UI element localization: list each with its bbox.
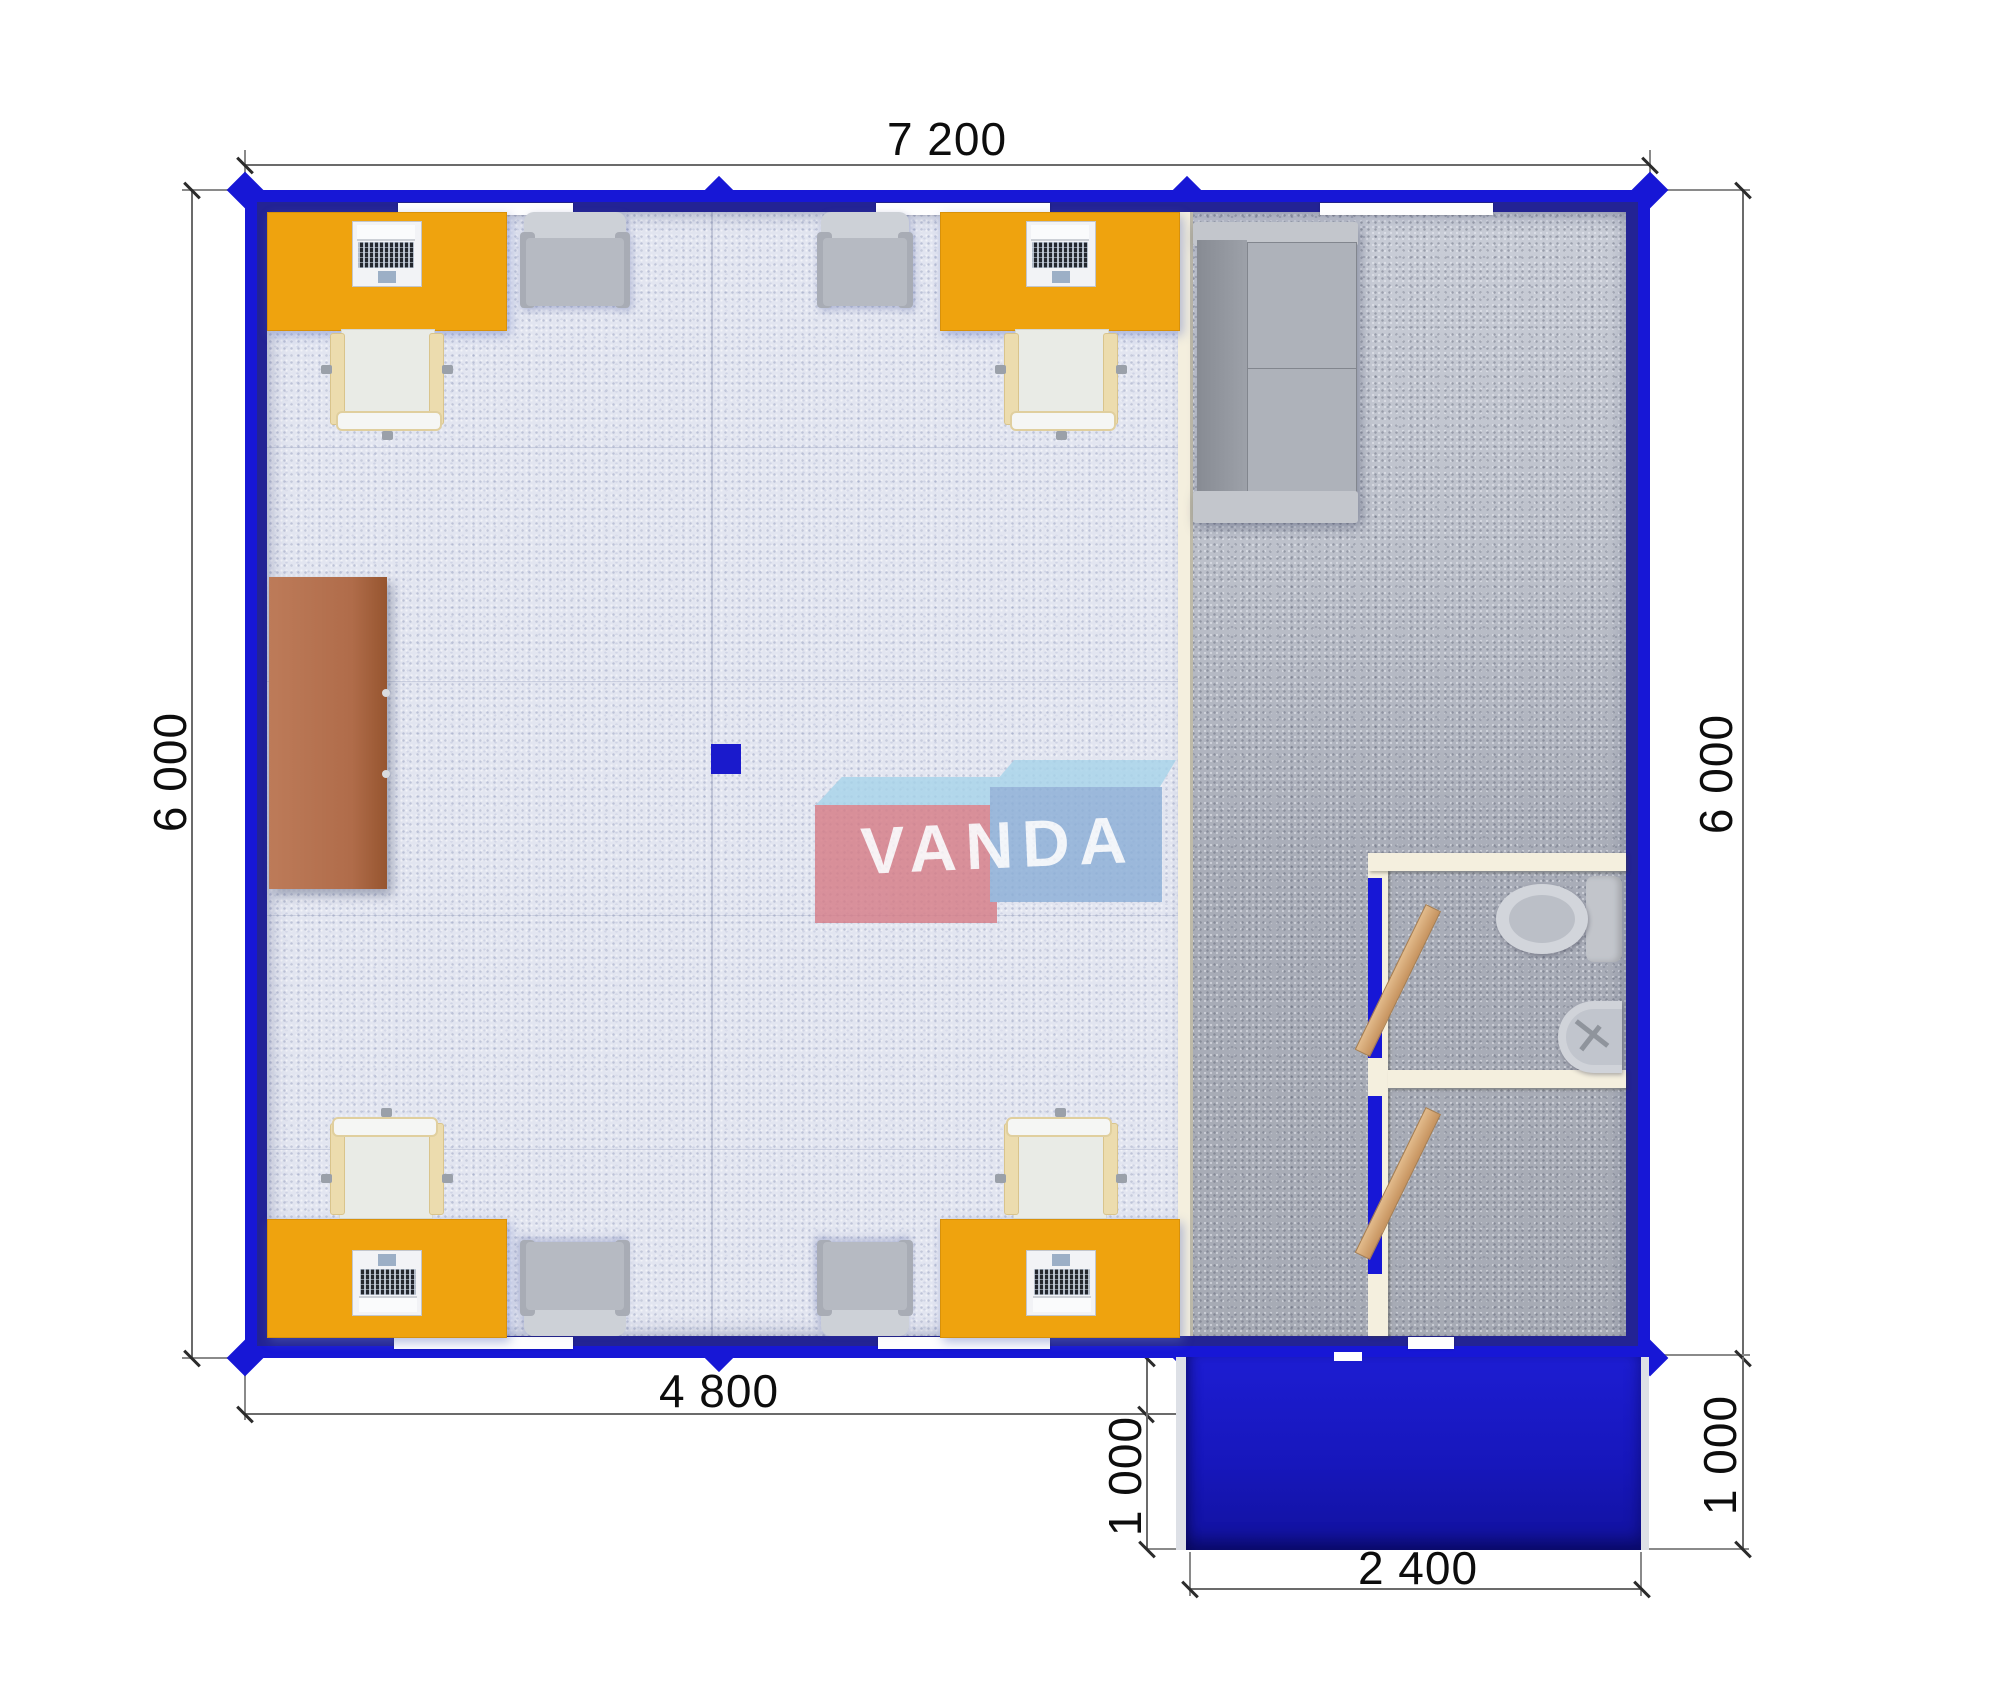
laptop-3 bbox=[352, 1250, 422, 1316]
laptop-lid bbox=[357, 225, 415, 241]
entrance-door-handle bbox=[1334, 1352, 1362, 1361]
chair-caster bbox=[382, 431, 393, 440]
sofa bbox=[1193, 222, 1358, 523]
laptop-keyboard bbox=[360, 1269, 416, 1295]
chair-caster bbox=[321, 365, 332, 374]
office-chair-1 bbox=[330, 329, 444, 429]
chair-backrest bbox=[1010, 411, 1116, 431]
laptop-keyboard bbox=[1032, 242, 1088, 268]
laptop-trackpad bbox=[1052, 271, 1070, 283]
dim-label-office-width: 4 800 bbox=[619, 1366, 819, 1416]
armchair-seat bbox=[526, 1242, 624, 1310]
chair-caster bbox=[381, 1108, 392, 1117]
laptop-lid bbox=[359, 1296, 417, 1312]
laptop-4 bbox=[1026, 1250, 1096, 1316]
dim-line-office-width bbox=[245, 1413, 1190, 1415]
chair-seat bbox=[341, 329, 435, 419]
center-floor-marker bbox=[711, 744, 741, 774]
office-chair-3 bbox=[330, 1119, 444, 1219]
laptop-trackpad bbox=[1052, 1254, 1070, 1266]
sofa-cushion bbox=[1247, 368, 1357, 495]
chair-caster bbox=[442, 1174, 453, 1183]
chair-caster bbox=[995, 365, 1006, 374]
dim-line-porch-width bbox=[1190, 1588, 1642, 1590]
bathroom-wall-top bbox=[1368, 853, 1626, 871]
storage-cabinet bbox=[269, 577, 387, 889]
dim-line-porch-depth-left bbox=[1146, 1357, 1148, 1549]
chair-seat bbox=[339, 1129, 433, 1219]
chair-backrest bbox=[332, 1117, 438, 1137]
extension-line bbox=[1649, 1548, 1749, 1550]
floor-seam bbox=[267, 681, 1178, 682]
entrance-porch bbox=[1186, 1357, 1641, 1550]
window-bottom-1 bbox=[394, 1337, 573, 1349]
logo-box-top-red bbox=[815, 777, 1007, 806]
chair-caster bbox=[1055, 1108, 1066, 1117]
floor-seam bbox=[711, 212, 713, 1336]
laptop-keyboard bbox=[1034, 1269, 1090, 1295]
armchair-seat bbox=[823, 238, 907, 306]
chair-caster bbox=[442, 365, 453, 374]
chair-backrest bbox=[1006, 1117, 1112, 1137]
porch-edge-left bbox=[1176, 1357, 1186, 1550]
chair-caster bbox=[995, 1174, 1006, 1183]
armchair-seat bbox=[526, 238, 624, 306]
armchair-seat bbox=[823, 1242, 907, 1310]
office-chair-2 bbox=[1004, 329, 1118, 429]
laptop-lid bbox=[1031, 225, 1089, 241]
laptop-1 bbox=[352, 221, 422, 287]
dim-label-left-height: 6 000 bbox=[145, 672, 195, 872]
dim-line-right-height bbox=[1742, 190, 1744, 1358]
vanda-logo: VANDA bbox=[810, 755, 1190, 935]
visitor-armchair-3 bbox=[520, 1238, 630, 1336]
logo-box-top-blue bbox=[990, 760, 1176, 788]
dim-line-top-width bbox=[245, 164, 1650, 166]
toilet-bowl bbox=[1496, 884, 1588, 954]
toilet bbox=[1496, 876, 1622, 962]
chair-caster bbox=[321, 1174, 332, 1183]
dim-line-porch-depth-right bbox=[1742, 1357, 1744, 1549]
dim-label-porch-depth-right: 1 000 bbox=[1695, 1355, 1745, 1555]
sofa-cushion bbox=[1247, 242, 1357, 369]
dim-label-top-width: 7 200 bbox=[847, 114, 1047, 164]
visitor-armchair-4 bbox=[817, 1238, 913, 1336]
visitor-armchair-2 bbox=[817, 212, 913, 310]
logo-wordmark: VANDA bbox=[821, 799, 1176, 890]
window-top-3 bbox=[1320, 203, 1493, 215]
floor-plan-canvas: 7 200 6 000 6 000 4 800 1 000 1 000 2 40… bbox=[0, 0, 2000, 1682]
sofa-backrest bbox=[1197, 240, 1247, 506]
chair-seat bbox=[1015, 329, 1109, 419]
porch-edge-right bbox=[1641, 1357, 1649, 1550]
laptop-keyboard bbox=[358, 242, 414, 268]
toilet-tank bbox=[1586, 876, 1622, 962]
chair-caster bbox=[1056, 431, 1067, 440]
vestibule-door-mark bbox=[1408, 1337, 1454, 1349]
sofa-armrest bbox=[1193, 491, 1358, 523]
chair-caster bbox=[1116, 365, 1127, 374]
laptop-trackpad bbox=[378, 271, 396, 283]
chair-backrest bbox=[336, 411, 442, 431]
laptop-2 bbox=[1026, 221, 1096, 287]
dim-label-right-height: 6 000 bbox=[1691, 674, 1741, 874]
washbasin bbox=[1558, 1001, 1622, 1073]
armchair-backrest bbox=[821, 1306, 909, 1336]
floor-seam bbox=[267, 447, 1178, 448]
chair-seat bbox=[1013, 1129, 1107, 1219]
window-bottom-2 bbox=[878, 1337, 1050, 1349]
laptop-lid bbox=[1033, 1296, 1091, 1312]
chair-caster bbox=[1116, 1174, 1127, 1183]
dim-label-porch-width: 2 400 bbox=[1318, 1543, 1518, 1593]
visitor-armchair-1 bbox=[520, 212, 630, 310]
armchair-backrest bbox=[524, 1306, 626, 1336]
laptop-trackpad bbox=[378, 1254, 396, 1266]
dim-line-left-height bbox=[191, 190, 193, 1358]
office-chair-4 bbox=[1004, 1119, 1118, 1219]
